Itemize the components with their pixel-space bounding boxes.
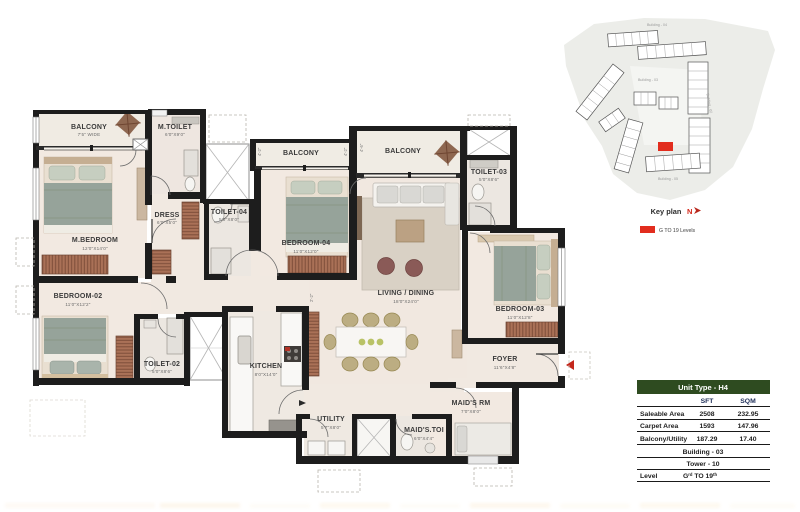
svg-text:5'0"X8'6": 5'0"X8'6": [479, 177, 499, 182]
svg-text:M.TOILET: M.TOILET: [158, 124, 193, 131]
svg-text:17.40: 17.40: [739, 436, 756, 443]
svg-text:Building - 03: Building - 03: [638, 78, 658, 82]
svg-text:MAID'S.TOI: MAID'S.TOI: [404, 427, 444, 434]
svg-text:1593: 1593: [699, 423, 714, 430]
svg-text:2'-2": 2'-2": [309, 293, 314, 302]
svg-text:4'-2": 4'-2": [343, 147, 348, 156]
svg-text:187.29: 187.29: [697, 436, 718, 443]
svg-text:Building - 05: Building - 05: [658, 177, 678, 181]
svg-text:BALCONY: BALCONY: [71, 124, 107, 131]
svg-text:FOYER: FOYER: [492, 356, 517, 363]
svg-text:11'0"X12'8": 11'0"X12'8": [507, 315, 532, 320]
svg-text:Tower - 10: Tower - 10: [686, 461, 719, 468]
svg-text:Carpet Area: Carpet Area: [640, 423, 678, 430]
svg-text:11'0"X12'2": 11'0"X12'2": [65, 302, 90, 307]
svg-text:BEDROOM-02: BEDROOM-02: [54, 293, 103, 300]
svg-text:Key plan: Key plan: [651, 207, 682, 216]
svg-text:5'7"X8'0": 5'7"X8'0": [321, 425, 341, 430]
svg-text:Grd TO 19th: Grd TO 19th: [683, 472, 718, 480]
svg-text:TOILET-04: TOILET-04: [211, 209, 247, 216]
svg-text:2508: 2508: [699, 411, 714, 418]
svg-text:SFT: SFT: [701, 398, 715, 405]
svg-text:LIVING / DINING: LIVING / DINING: [378, 290, 435, 297]
svg-text:6'0"X5'0": 6'0"X5'0": [157, 220, 177, 225]
svg-text:5'0"X8'0": 5'0"X8'0": [219, 217, 239, 222]
svg-text:Saleable Area: Saleable Area: [640, 411, 685, 418]
svg-text:TOILET-03: TOILET-03: [471, 169, 507, 176]
svg-text:BEDROOM-03: BEDROOM-03: [496, 306, 545, 313]
svg-text:Building - 04: Building - 04: [647, 23, 667, 27]
svg-text:MAID'S RM: MAID'S RM: [452, 400, 491, 407]
svg-text:M.BEDROOM: M.BEDROOM: [72, 237, 118, 244]
svg-text:BEDROOM-04: BEDROOM-04: [282, 240, 331, 247]
svg-text:18'0"X24'0": 18'0"X24'0": [393, 299, 419, 304]
svg-text:N: N: [687, 207, 692, 216]
svg-text:BALCONY: BALCONY: [283, 150, 319, 157]
svg-text:5'0"X8'6": 5'0"X8'6": [152, 369, 172, 374]
svg-text:8'0"X14'0": 8'0"X14'0": [255, 372, 278, 377]
svg-text:Level: Level: [640, 473, 657, 480]
svg-text:Building - 03: Building - 03: [683, 449, 724, 456]
svg-text:147.96: 147.96: [738, 423, 759, 430]
svg-text:4'-6": 4'-6": [359, 143, 364, 152]
svg-text:4'-2": 4'-2": [257, 147, 262, 156]
svg-text:G TO 19 Levels: G TO 19 Levels: [659, 228, 696, 234]
svg-text:TOILET-02: TOILET-02: [144, 361, 180, 368]
svg-text:11'0"X12'0": 11'0"X12'0": [293, 249, 318, 254]
svg-text:7'5" WIDE: 7'5" WIDE: [78, 132, 101, 137]
svg-text:DRESS: DRESS: [154, 212, 179, 219]
svg-text:BALCONY: BALCONY: [385, 148, 421, 155]
svg-text:UTILITY: UTILITY: [317, 416, 345, 423]
svg-text:7'0"X8'0": 7'0"X8'0": [461, 409, 481, 414]
svg-text:Balcony/Utility: Balcony/Utility: [640, 436, 687, 443]
svg-text:6'0"X4'4": 6'0"X4'4": [414, 436, 434, 441]
svg-text:KITCHEN: KITCHEN: [250, 363, 283, 370]
svg-text:11'6"X4'8": 11'6"X4'8": [494, 365, 517, 370]
svg-text:Unit Type - H4: Unit Type - H4: [678, 383, 729, 392]
svg-text:6'0"X9'0": 6'0"X9'0": [165, 132, 185, 137]
svg-text:12'0"X14'0": 12'0"X14'0": [82, 246, 108, 251]
svg-text:SQM: SQM: [740, 398, 756, 405]
svg-text:232.95: 232.95: [738, 411, 759, 418]
